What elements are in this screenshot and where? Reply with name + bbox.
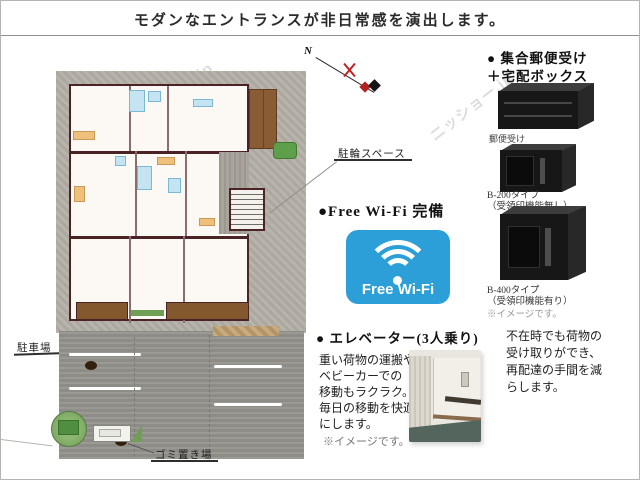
floorplan-wall — [71, 236, 247, 239]
mailbox-front-face — [498, 91, 578, 129]
free-wifi-badge: Free Wi-Fi — [346, 230, 450, 304]
garbage-station-lid — [99, 429, 121, 437]
elevator-door-panel — [409, 356, 431, 430]
elevator-control-panel — [461, 372, 469, 387]
closet — [157, 157, 175, 165]
green-wedge — [131, 425, 142, 442]
parking-stall-line — [69, 353, 141, 356]
mailbox-photo — [498, 83, 598, 131]
mailbox-section-heading-line1: ● 集合郵便受け — [487, 47, 588, 67]
elevator-photo — [409, 350, 481, 442]
mailbox-desc-line: 再配達の手間を減 — [506, 362, 602, 378]
mail-slot — [504, 102, 572, 104]
delivery-box-side-face — [568, 206, 586, 280]
bathroom-fixture — [129, 90, 145, 112]
balcony — [76, 302, 128, 320]
free-wifi-badge-label: Free Wi-Fi — [346, 281, 450, 298]
closet — [74, 186, 85, 202]
elevator-desc-line: にします。 — [319, 416, 378, 432]
delivery-box-side-face — [562, 144, 576, 192]
elevator-image-note: ※イメージです。 — [323, 433, 410, 449]
entrance-planting — [131, 310, 164, 316]
north-arrow-label: N — [304, 45, 312, 57]
floorplan-wall — [135, 151, 137, 236]
shrub — [273, 142, 297, 159]
wifi-section-heading: ●Free Wi-Fi 完備 — [318, 200, 444, 221]
mailbox-desc-line: 受け取りができ、 — [506, 345, 601, 361]
garbage-label-underline — [151, 460, 218, 462]
elevator-desc-line: 重い荷物の運搬や — [319, 352, 415, 368]
wood-deck — [249, 89, 277, 149]
elevator-desc-line: ベビーカーでの — [319, 368, 402, 384]
elevator-section-heading: ● エレベーター(3人乗り) — [316, 327, 479, 347]
road-edge-line — [1, 439, 53, 446]
kitchen-sink-fixture — [193, 99, 213, 107]
bicycle-label-underline — [334, 159, 412, 161]
closet — [73, 131, 95, 140]
mailbox-desc-line: 不在時でも荷物の — [506, 328, 602, 344]
bathroom-fixture — [115, 156, 126, 166]
toilet-fixture — [148, 91, 161, 102]
delivery-box-handle — [545, 228, 551, 266]
mail-slot — [504, 115, 572, 117]
elevator-desc-line: 毎日の移動を快適 — [319, 400, 415, 416]
delivery-box-front-face — [500, 214, 568, 280]
delivery-box-door — [508, 226, 540, 268]
manhole-dot — [85, 361, 97, 370]
bathtub-fixture — [137, 166, 152, 190]
delivery-box-front-face — [500, 150, 562, 192]
mailbox-desc-line: らします。 — [506, 379, 565, 395]
elevator-desc-line: 移動もラクラク。 — [319, 384, 414, 400]
planter-box — [58, 420, 79, 435]
delivery-box-handle — [540, 158, 545, 184]
washstand-fixture — [168, 178, 181, 193]
mailbox-image-note: ※イメージです。 — [487, 306, 562, 320]
parking-hatch-strip — [213, 326, 279, 336]
floorplan-wall — [167, 86, 169, 151]
delivery-box2-note: （受領印機能有り） — [487, 293, 573, 307]
parking-stall-line — [214, 403, 282, 406]
staircase — [229, 188, 265, 231]
parking-divider-line — [209, 335, 210, 457]
balcony — [166, 302, 249, 320]
page-title: モダンなエントランスが非日常感を演出します。 — [1, 9, 639, 30]
property-promo-image: モダンなエントランスが非日常感を演出します。 ニッショー.jp ニッショー.jp… — [0, 0, 640, 480]
building-floorplan — [69, 84, 249, 321]
delivery-box-photo-large — [500, 206, 588, 282]
delivery-box-door — [506, 156, 534, 186]
parking-stall-line — [214, 365, 282, 368]
parking-stall-line — [69, 387, 141, 390]
title-divider — [1, 35, 639, 36]
closet — [199, 218, 215, 226]
floorplan-wall — [185, 151, 187, 236]
mailbox-section-heading-line2: ＋宅配ボックス — [487, 65, 588, 85]
elevator-cab-back-wall — [433, 358, 480, 420]
